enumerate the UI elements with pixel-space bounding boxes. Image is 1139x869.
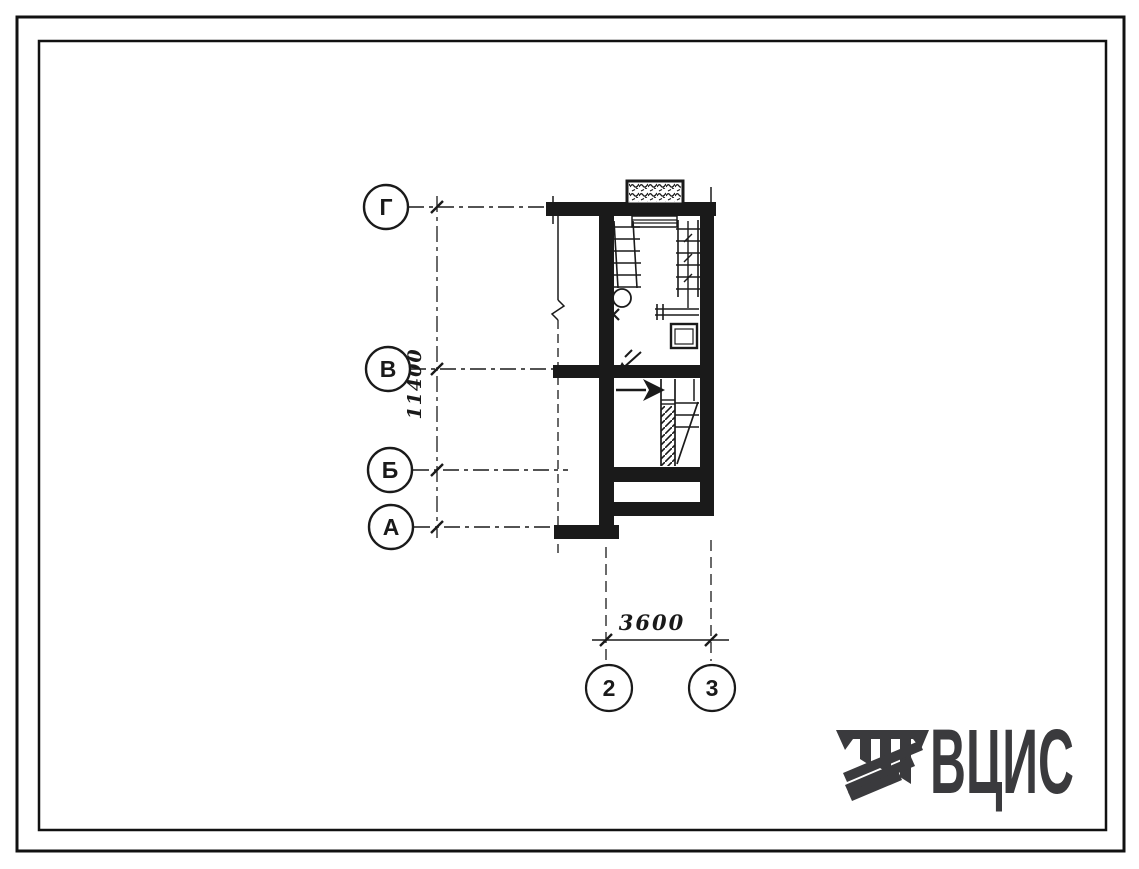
blueprint-drawing: 11400 Г В Б А 3600 2 3 [0, 0, 1139, 869]
wall-axis-b [599, 467, 714, 482]
row-axes: 11400 Г В Б А [364, 185, 568, 549]
wall-axis-v-right [614, 365, 700, 378]
wall-axis-v-left [553, 365, 599, 378]
wall-inner-vertical [599, 216, 614, 539]
winder-stair [661, 379, 699, 466]
axis-label-a: А [383, 514, 400, 540]
axis-label-2: 2 [603, 675, 616, 701]
logo-emblem [836, 730, 929, 801]
logo: ВЦИС [836, 711, 1074, 813]
logo-text: ВЦИС [930, 711, 1074, 813]
axis-label-3: 3 [706, 675, 719, 701]
stair-flight-upper-right [676, 220, 700, 308]
building-edge-left [552, 216, 564, 556]
vent-opening [632, 216, 677, 227]
stair-flight-upper-left [611, 221, 641, 288]
stair-diagonal [677, 402, 698, 464]
column-circle [613, 289, 631, 307]
entry-arrow [616, 379, 665, 401]
stove-detail [671, 324, 697, 348]
axis-label-v: В [380, 356, 397, 382]
wall-bottom-left [554, 525, 619, 539]
axis-label-g: Г [379, 194, 392, 220]
dimension-value-horizontal: 3600 [619, 610, 685, 635]
scanned-drawing-page: 11400 Г В Б А 3600 2 3 [0, 0, 1139, 869]
axis-label-b: Б [382, 457, 399, 483]
col-axes: 3600 2 3 [586, 540, 735, 711]
chimney-block [627, 181, 683, 227]
stair-string-hatch [661, 406, 675, 466]
bench-detail [655, 304, 699, 320]
break-mark [552, 300, 564, 320]
wall-bottom-right [613, 502, 714, 516]
